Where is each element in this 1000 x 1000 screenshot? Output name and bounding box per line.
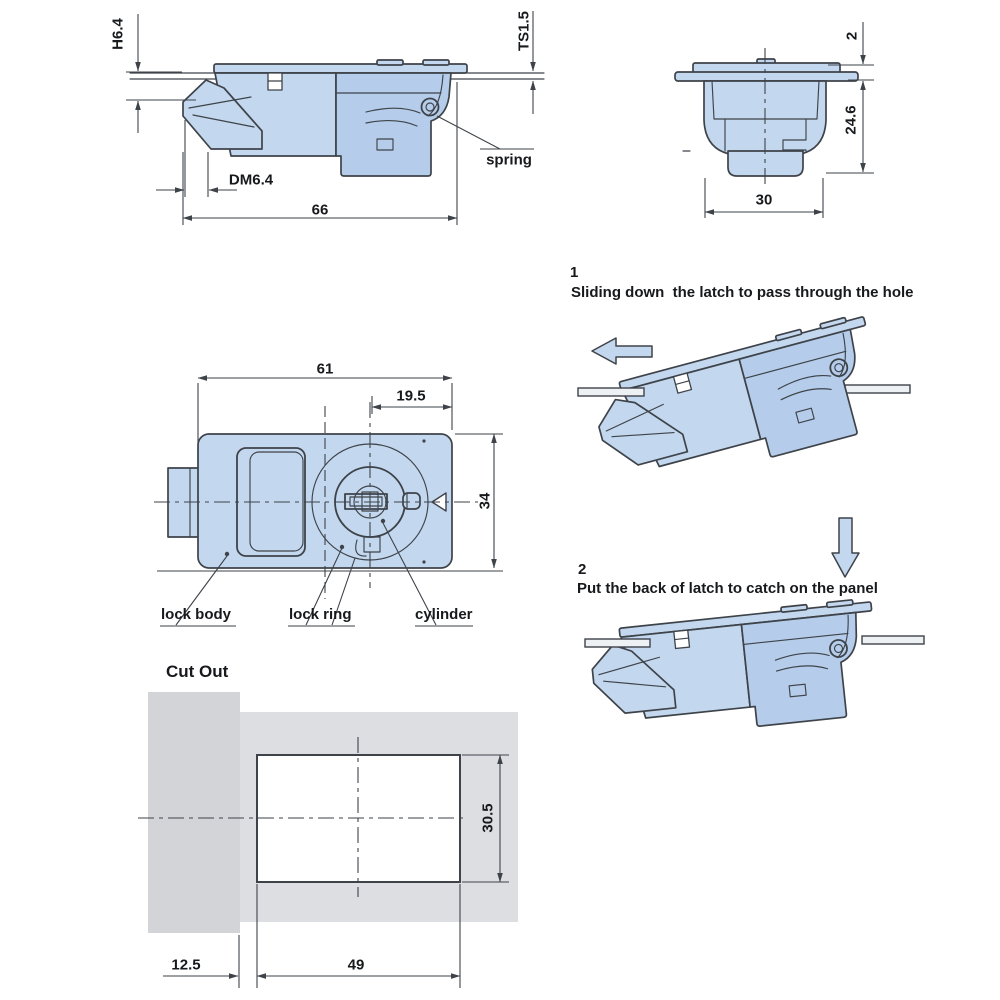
dim-h64-label: H6.4 bbox=[109, 18, 126, 50]
dim-ts15-label: TS1.5 bbox=[515, 11, 532, 51]
dim-dm64-label: DM6.4 bbox=[229, 171, 273, 188]
front-view-drawing bbox=[154, 378, 503, 626]
cutout-diagram bbox=[138, 692, 518, 988]
cutout-panel-left bbox=[148, 692, 240, 933]
dim-195-label: 19.5 bbox=[396, 387, 425, 404]
side-view-drawing bbox=[126, 11, 544, 225]
dim-34-label: 34 bbox=[476, 493, 493, 510]
dim-30-label: 30 bbox=[756, 191, 773, 208]
technical-drawing-page: H6.4 TS1.5 DM6.4 66 spring 2 24.6 30 1 S… bbox=[0, 0, 1000, 1000]
step1-caption: Sliding down the latch to pass through t… bbox=[571, 284, 914, 301]
lock-body-label: lock body bbox=[161, 606, 231, 623]
step2-number: 2 bbox=[578, 561, 586, 578]
dim-125-label: 12.5 bbox=[171, 956, 200, 973]
slide-left-arrow-icon bbox=[592, 338, 652, 364]
step2-illustration bbox=[585, 518, 924, 743]
lock-ring-label: lock ring bbox=[289, 606, 352, 623]
step2-caption: Put the back of latch to catch on the pa… bbox=[577, 580, 878, 597]
dim-66-label: 66 bbox=[312, 201, 329, 218]
push-down-arrow-icon bbox=[832, 518, 859, 577]
dim-2-label: 2 bbox=[843, 32, 860, 40]
technical-drawing-canvas bbox=[0, 0, 1000, 1000]
dim-305-label: 30.5 bbox=[479, 803, 496, 832]
dim-49-label: 49 bbox=[348, 956, 365, 973]
spring-label: spring bbox=[486, 151, 532, 168]
cutout-title: Cut Out bbox=[166, 662, 228, 682]
spring-leader-line bbox=[437, 116, 534, 149]
step1-number: 1 bbox=[570, 264, 578, 281]
cylinder-label: cylinder bbox=[415, 606, 473, 623]
dim-246-label: 24.6 bbox=[842, 105, 859, 134]
dim-61-label: 61 bbox=[317, 360, 334, 377]
step1-illustration bbox=[578, 313, 910, 499]
